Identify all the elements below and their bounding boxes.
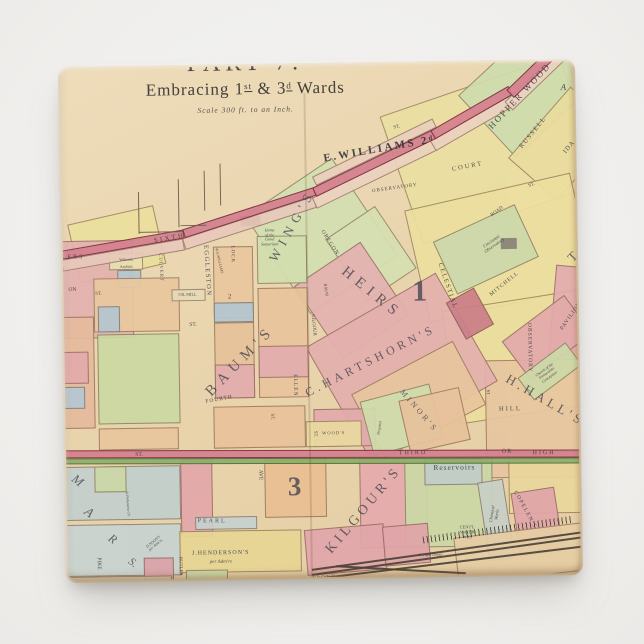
map-label: ST. [135, 452, 142, 458]
map-label: ST [484, 389, 490, 395]
map-label: ST. [312, 431, 317, 438]
map-label: PIKE [96, 557, 102, 569]
map-title-cut: PART 7. [100, 64, 390, 79]
map-label: CELESTIAL [436, 262, 458, 310]
map-label: 2 [228, 293, 232, 301]
map-label: St.Philomena Ch. [125, 491, 131, 517]
map-label: HILL [499, 405, 522, 413]
map-label: ERS [67, 254, 84, 261]
map-label: A [561, 82, 567, 92]
map-label: E.WILLIAMS 2ᵈ [323, 133, 437, 165]
map-label: M [69, 472, 86, 490]
map-label: CENT'L WATER WKS [460, 525, 475, 540]
map-label: COPELEN'S [512, 490, 538, 530]
map-label: Home of the Good Samaritan [261, 228, 279, 247]
map-label: WOOD'S [322, 430, 345, 435]
map-label: OR [502, 449, 512, 456]
map-label: BAUM'S [203, 322, 279, 400]
map-label: Cincinnati Observatory [480, 232, 505, 254]
map-label: OBSERVATORY [526, 323, 533, 373]
map-label: WING'S [266, 187, 318, 265]
map-label: SIXTH [153, 232, 185, 245]
map-label: ELLEN [292, 374, 299, 397]
map-label: J.HENDERSON'S [192, 550, 250, 558]
map-label: THIRD [399, 450, 427, 457]
map-label: CULVERT [157, 253, 164, 282]
map-label: R [105, 532, 119, 547]
map-label: ST. [189, 322, 196, 328]
map-label: C.HARTSHORN'S [303, 323, 438, 400]
subtitle-part: Embracing 1 [146, 79, 245, 100]
subtitle-part: Wards [292, 78, 345, 98]
map-label: ST. [393, 124, 401, 131]
map-label: ST. [95, 292, 102, 298]
map-label: D.NOON'S per Adm'rs [145, 535, 164, 552]
map-label: AVE [257, 470, 263, 481]
map-label: BAUM [322, 283, 329, 296]
map-label: Freight Depot [419, 553, 443, 558]
map-label: HIGH [533, 450, 556, 457]
map-label: RUSSELL [518, 115, 548, 150]
map-label: PEARL [198, 518, 227, 525]
map-label: OIL MILL [178, 293, 196, 298]
map-label: KILGOUR [309, 314, 317, 336]
map-label: S. [126, 556, 140, 571]
map-label: EGGLESTON [202, 245, 213, 297]
map-label: ST. [269, 414, 274, 421]
map-label: A [81, 504, 96, 520]
map-label: MITCHELL [489, 270, 521, 297]
map-label: Hospital [376, 421, 383, 435]
map-label: BUTLER [177, 557, 183, 576]
map-label: Wilson's [119, 258, 133, 263]
map-label: per Adm'rs [210, 560, 232, 566]
map-label: 1 [412, 275, 428, 309]
map-label: ROAD [490, 206, 505, 219]
subtitle-part: & 3 [252, 79, 287, 99]
map-label: KILGOUR'S [323, 463, 405, 557]
map-label: T [565, 249, 581, 265]
map-label: PAVILION [559, 301, 581, 332]
subtitle-superscript: st [244, 81, 252, 92]
labels-layer: SIXTHE.WILLIAMS 2ᵈST.HOPPER WOODRUSSELLC… [60, 61, 581, 581]
map-label: HEIRS [338, 264, 406, 323]
map-label: IDA [562, 139, 577, 155]
map-label: OBSERVATORY [372, 183, 418, 195]
map-sheet: SIXTHE.WILLIAMS 2ᵈST.HOPPER WOODRUSSELLC… [60, 61, 581, 581]
map-label: OREGON [319, 229, 340, 257]
map-label: Reservoirs [433, 463, 475, 472]
map-label: COURT [451, 160, 483, 173]
map-subtitle: Embracing 1st & 3d Wards [100, 77, 390, 102]
map-magnet: SIXTHE.WILLIAMS 2ᵈST.HOPPER WOODRUSSELLC… [58, 59, 583, 583]
map-label: ON [68, 287, 76, 293]
map-label: 3 [288, 471, 302, 501]
map-label: MINOR'S [398, 388, 440, 434]
map-label: ST. [528, 182, 536, 190]
map-title-cut-text: PART 7. [100, 64, 390, 78]
map-label: Asylum [120, 265, 133, 270]
map-label: LOCK [229, 246, 235, 264]
map-label: W.S.WILLIAMS [214, 247, 224, 274]
map-label: Church of the Immaculata Conception [535, 362, 559, 384]
map-label: FRONT [312, 574, 335, 581]
map-label: Chemical Works [489, 505, 501, 523]
map-title-block: PART 7. Embracing 1st & 3d Wards Scale 3… [100, 64, 391, 117]
